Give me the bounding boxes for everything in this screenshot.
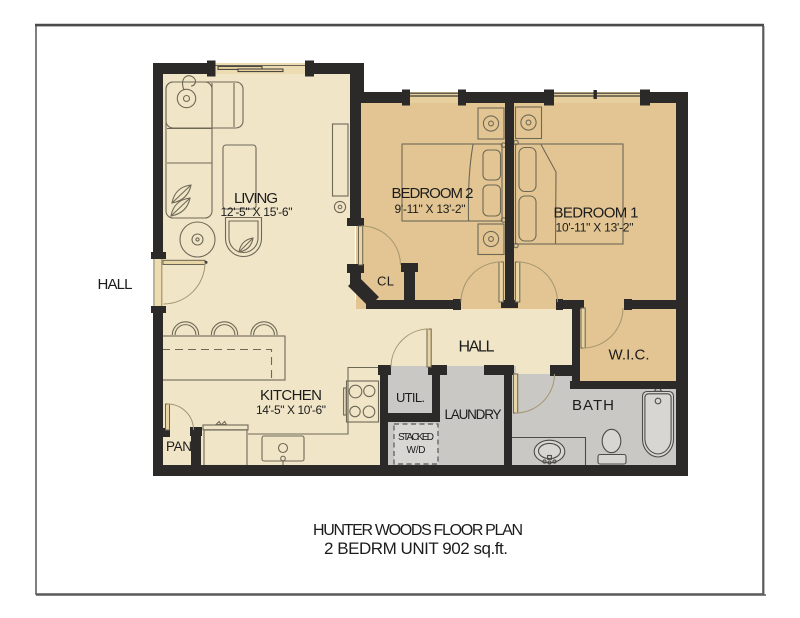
svg-text:HUNTER WOODS FLOOR PLAN: HUNTER WOODS FLOOR PLAN xyxy=(313,522,523,539)
svg-text:STACKED: STACKED xyxy=(398,432,434,443)
svg-text:14'-5" X 10'-6": 14'-5" X 10'-6" xyxy=(256,403,326,417)
svg-text:BEDROOM 1: BEDROOM 1 xyxy=(554,205,639,222)
svg-text:9'-11" X 13'-2": 9'-11" X 13'-2" xyxy=(395,202,466,216)
svg-text:KITCHEN: KITCHEN xyxy=(260,387,322,404)
svg-text:10'-11" X 13'-2": 10'-11" X 13'-2" xyxy=(556,221,634,235)
svg-text:LAUNDRY: LAUNDRY xyxy=(445,407,502,422)
svg-text:UTIL.: UTIL. xyxy=(396,390,425,405)
svg-text:BATH: BATH xyxy=(572,397,614,414)
svg-text:HALL: HALL xyxy=(98,276,133,293)
svg-text:12'-5" X 15'-6": 12'-5" X 15'-6" xyxy=(221,205,293,219)
svg-text:CL: CL xyxy=(377,274,394,289)
svg-text:W.I.C.: W.I.C. xyxy=(609,347,650,364)
svg-text:W/D: W/D xyxy=(407,445,426,456)
svg-text:2 BEDRM UNIT 902 sq.ft.: 2 BEDRM UNIT 902 sq.ft. xyxy=(324,539,508,558)
svg-text:PAN: PAN xyxy=(166,439,192,454)
svg-text:BEDROOM 2: BEDROOM 2 xyxy=(392,185,474,202)
svg-text:HALL: HALL xyxy=(459,339,495,356)
